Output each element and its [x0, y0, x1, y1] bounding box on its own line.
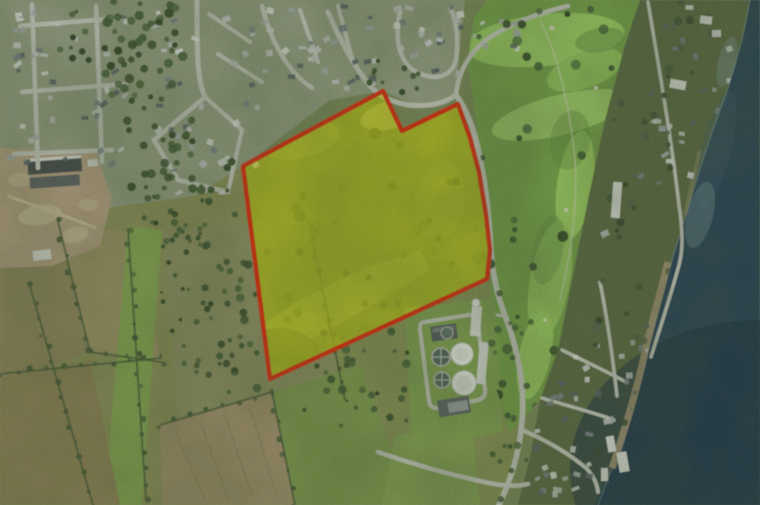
aerial-map	[0, 0, 760, 505]
aerial-screenshot	[0, 0, 760, 505]
grain-light	[0, 0, 760, 505]
